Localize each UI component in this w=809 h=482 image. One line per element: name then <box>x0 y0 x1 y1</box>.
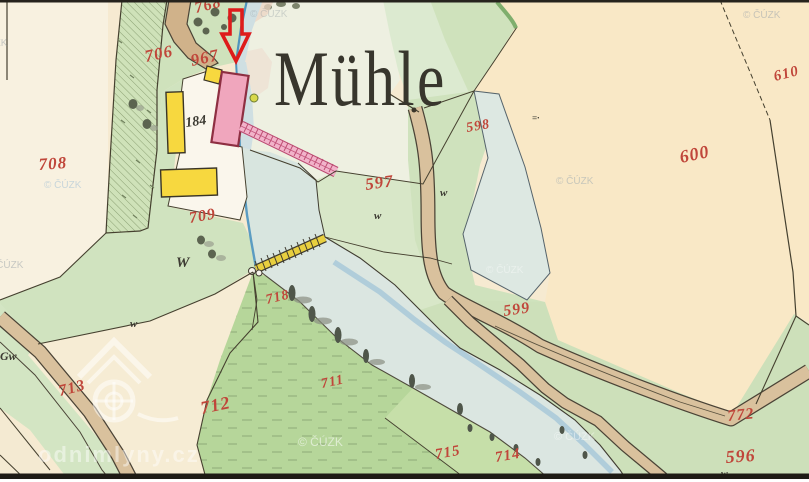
svg-text:=·: =· <box>532 113 539 123</box>
svg-text:© ČÚZK: © ČÚZK <box>0 36 8 49</box>
svg-text:© ČÚZK: © ČÚZK <box>556 174 594 187</box>
svg-text:© ČÚZK: © ČÚZK <box>486 263 524 276</box>
svg-text:w: w <box>440 187 448 199</box>
svg-text:© ČÚZK: © ČÚZK <box>250 7 288 20</box>
svg-text:© ČÚZK: © ČÚZK <box>298 434 343 449</box>
svg-text:596: 596 <box>725 445 756 467</box>
svg-text:Gw: Gw <box>0 349 18 363</box>
svg-text:w: w <box>374 210 382 222</box>
svg-text:© ČÚZK: © ČÚZK <box>554 430 596 443</box>
svg-text:© ČÚZK: © ČÚZK <box>0 258 24 271</box>
svg-text:W: W <box>176 255 191 271</box>
svg-text:w: w <box>130 318 138 330</box>
svg-text:© ČÚZK: © ČÚZK <box>44 178 82 191</box>
svg-text:odnimlyny.cz: odnimlyny.cz <box>38 442 200 467</box>
svg-text:772: 772 <box>727 405 756 425</box>
svg-text:Mühle: Mühle <box>274 36 447 123</box>
svg-text:597: 597 <box>364 171 395 194</box>
svg-text:184: 184 <box>184 113 207 131</box>
svg-text:708: 708 <box>38 153 68 174</box>
svg-text:© ČÚZK: © ČÚZK <box>743 8 781 21</box>
